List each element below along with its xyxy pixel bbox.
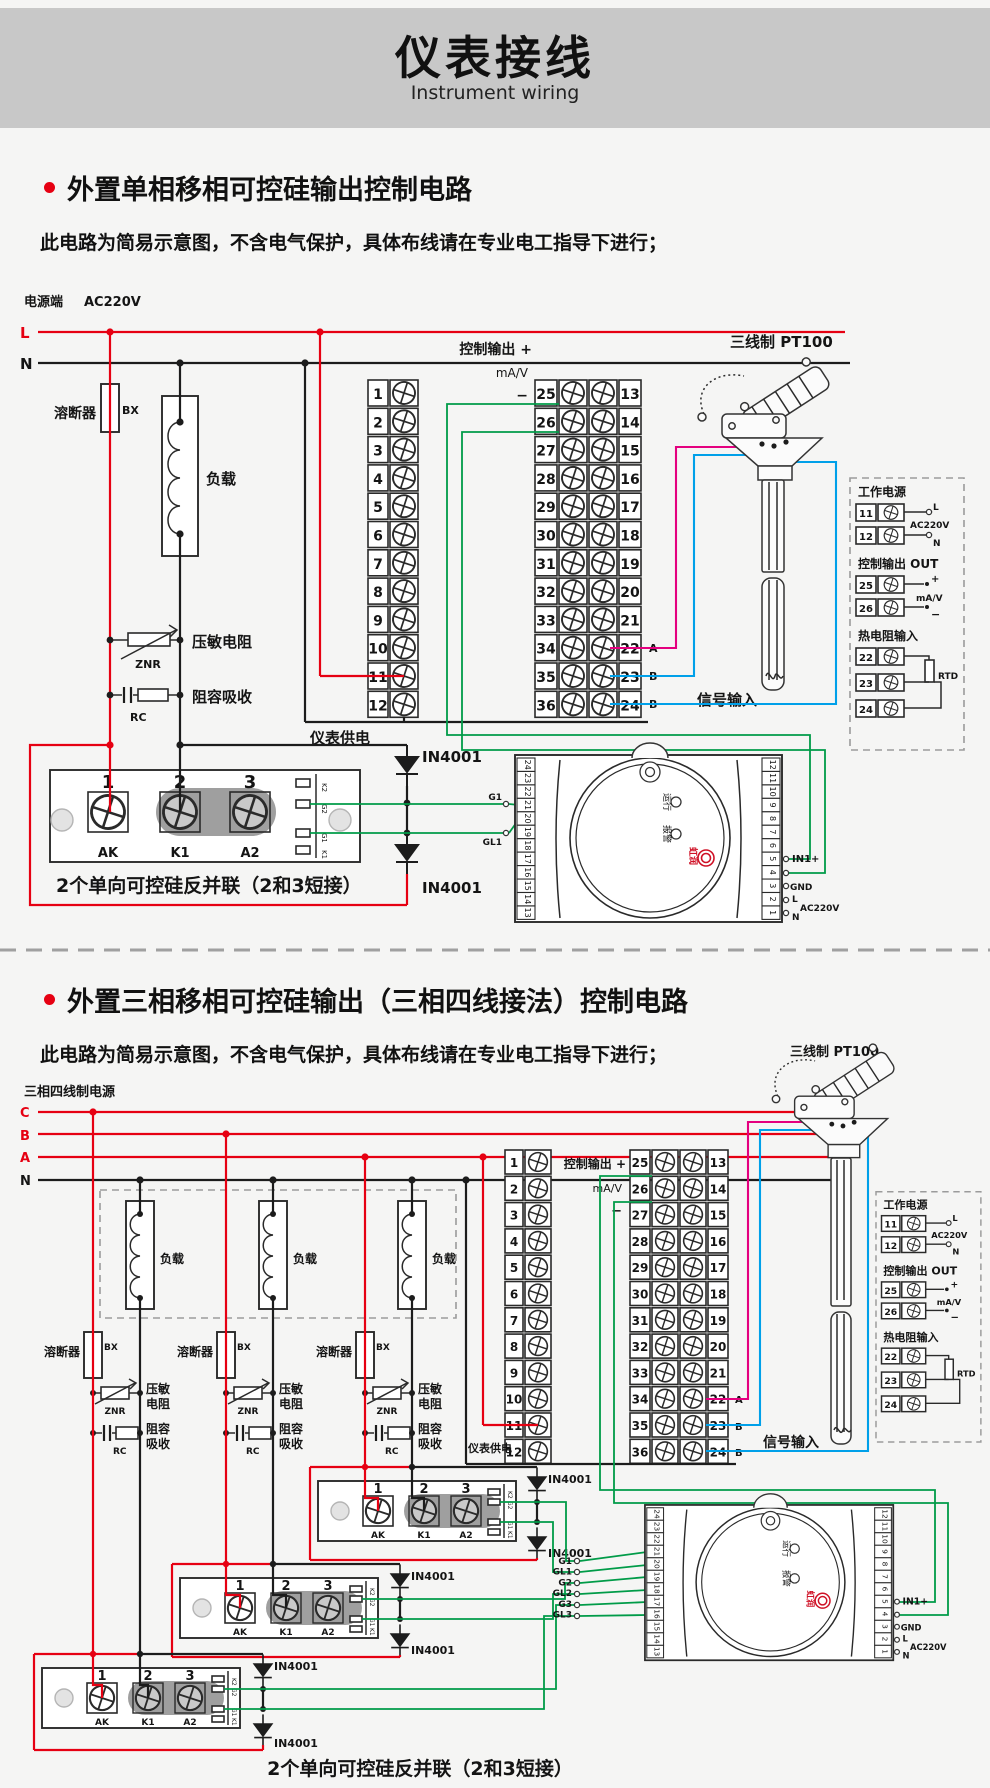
svg-text:15: 15 <box>710 1209 727 1223</box>
page: 仪表接线 Instrument wiring 外置单相移相可控硅输出控制电路 此… <box>0 0 990 1788</box>
svg-text:18: 18 <box>710 1288 727 1302</box>
svg-text:29: 29 <box>632 1261 649 1275</box>
panel-rtd: RTD <box>938 672 958 682</box>
l-label: L <box>792 895 798 905</box>
svg-text:2: 2 <box>510 1182 518 1196</box>
fuse-code-label: BX <box>122 404 139 417</box>
pt100-label: 三线制 PT100 <box>790 1044 879 1060</box>
svg-text:28: 28 <box>536 472 555 488</box>
scr-caption-s1: 2个单向可控硅反并联（2和3短接） <box>56 874 362 897</box>
terminal-row: 29 17 <box>535 492 641 520</box>
signal-b1-label: B <box>735 1422 743 1433</box>
load-label: 负载 <box>206 470 236 488</box>
diode-label: IN4001 <box>422 879 482 897</box>
fuse-label: 溶断器 <box>54 405 97 422</box>
ctrl-out-label: 控制输出 + <box>459 341 532 358</box>
terminal-row: 3 <box>368 436 418 464</box>
diode-label: IN4001 <box>274 1660 318 1673</box>
terminal-row: 2 <box>368 407 418 435</box>
svg-text:11: 11 <box>368 670 387 686</box>
meter-supply-label: 仪表供电 <box>467 1441 512 1455</box>
terminal-row: 30 18 <box>535 521 641 549</box>
scr-terminal-1: 1 <box>373 1482 382 1497</box>
svg-text:35: 35 <box>632 1419 649 1433</box>
svg-text:6: 6 <box>373 529 383 545</box>
svg-text:27: 27 <box>632 1209 649 1223</box>
panel-mav: mA/V <box>916 594 943 604</box>
svg-text:12: 12 <box>768 760 777 770</box>
fuse-s2: 溶断器 BX <box>44 1332 118 1378</box>
phase-n-label: N <box>20 1174 31 1189</box>
terminal-row: 7 <box>368 549 418 577</box>
terminal-row: 27 15 <box>630 1203 728 1227</box>
svg-text:4: 4 <box>510 1235 518 1249</box>
terminal-row: 31 19 <box>630 1308 728 1332</box>
snubber-l2: 吸收 <box>146 1436 170 1451</box>
scr-pin-k1: K1 <box>170 846 189 861</box>
terminal-row: 6 <box>505 1282 551 1306</box>
svg-text:19: 19 <box>523 827 532 837</box>
znr-label: ZNR <box>105 1407 126 1417</box>
protection-s2: ZNR 压敏 电阻 RC 阻容 吸收 <box>90 1379 171 1457</box>
svg-text:23: 23 <box>620 670 639 686</box>
svg-text:36: 36 <box>536 698 555 714</box>
svg-text:1: 1 <box>373 387 383 403</box>
svg-text:20: 20 <box>523 813 532 823</box>
ctrl-out-label: 控制输出 + <box>564 1156 626 1171</box>
panel-23: 23 <box>859 679 873 690</box>
terminal-row: 9 <box>368 606 418 634</box>
terminal-block-right-s1: 25 13 26 14 <box>535 379 641 718</box>
terminal-row: 4 <box>368 464 418 492</box>
rc-label: RC <box>113 1447 127 1457</box>
panel-26: 26 <box>859 604 873 615</box>
svg-text:16: 16 <box>620 472 639 488</box>
scr-strip-g2: G2 <box>320 804 328 814</box>
panel-11: 11 <box>859 509 873 520</box>
line-l-label: L <box>20 324 30 342</box>
svg-text:26: 26 <box>536 415 555 431</box>
znr-label: ZNR <box>135 658 161 671</box>
terminal-row: 9 <box>505 1360 551 1384</box>
svg-text:6: 6 <box>510 1288 518 1302</box>
scr-terminal-3: 3 <box>244 772 257 793</box>
terminal-row: 5 <box>368 492 418 520</box>
svg-text:GL3: GL3 <box>553 1611 572 1621</box>
svg-text:17: 17 <box>710 1261 727 1275</box>
svg-text:G1: G1 <box>558 1557 572 1567</box>
svg-text:12: 12 <box>368 698 387 714</box>
signal-input-label: 信号输入 <box>697 691 757 709</box>
svg-text:11: 11 <box>768 773 777 783</box>
svg-text:24: 24 <box>523 760 532 770</box>
pt100-label: 三线制 PT100 <box>730 333 833 351</box>
svg-text:8: 8 <box>373 585 383 601</box>
signal-a-label: A <box>735 1395 743 1406</box>
svg-text:25: 25 <box>536 387 555 403</box>
svg-text:13: 13 <box>710 1156 727 1170</box>
svg-text:36: 36 <box>632 1445 649 1459</box>
svg-text:1: 1 <box>768 910 777 915</box>
trigger-board-s2 <box>645 1494 947 1661</box>
trigger-left-strip: 24 23 22 21 20 19 18 17 16 15 14 13 <box>517 758 535 919</box>
svg-text:20: 20 <box>710 1340 727 1354</box>
power-voltage-label: AC220V <box>84 295 141 310</box>
svg-text:5: 5 <box>510 1261 518 1275</box>
varistor-l1: 压敏 <box>146 1381 171 1396</box>
svg-text:22: 22 <box>620 642 639 658</box>
terminal-row: 1 <box>368 379 418 407</box>
section1-diagram: 电源端 AC220V L N 溶断器 BX 负载 <box>20 294 964 923</box>
svg-text:14: 14 <box>710 1182 727 1196</box>
terminal-row: 33 21 <box>535 606 641 634</box>
panel-22: 22 <box>859 653 873 664</box>
diode-label: IN4001 <box>411 1644 455 1657</box>
svg-text:15: 15 <box>620 444 639 460</box>
terminal-row: 29 17 <box>630 1255 728 1279</box>
svg-text:16: 16 <box>710 1235 727 1249</box>
svg-text:13: 13 <box>620 387 639 403</box>
panel-ac: AC220V <box>910 521 949 531</box>
panel-24: 24 <box>859 705 873 716</box>
svg-text:27: 27 <box>536 444 555 460</box>
terminal-row: 5 <box>505 1255 551 1279</box>
svg-text:14: 14 <box>523 894 532 904</box>
svg-text:29: 29 <box>536 500 555 516</box>
svg-text:21: 21 <box>710 1366 727 1380</box>
svg-text:G3: G3 <box>558 1600 572 1610</box>
scr-pin-ak: AK <box>371 1531 386 1541</box>
terminal-row: 1 <box>505 1150 551 1174</box>
terminal-row: 10 <box>368 634 418 662</box>
svg-text:15: 15 <box>523 881 532 891</box>
terminal-row: 31 19 <box>535 549 641 577</box>
scr-module-s1: 1 2 3 AK K1 A2 K2 G2 G1 K1 <box>50 770 360 862</box>
svg-text:16: 16 <box>523 867 532 877</box>
svg-text:21: 21 <box>620 613 639 629</box>
svg-text:22: 22 <box>523 787 532 797</box>
terminal-row: 4 <box>505 1229 551 1253</box>
gate-gl1-label: GL1 <box>483 838 502 848</box>
svg-text:9: 9 <box>510 1366 518 1380</box>
svg-text:32: 32 <box>536 585 555 601</box>
svg-text:18: 18 <box>620 529 639 545</box>
ac220-label: AC220V <box>800 904 839 914</box>
signal-b2-label: B <box>735 1448 743 1459</box>
svg-text:2: 2 <box>373 415 383 431</box>
side-panel: 工作电源 11 L AC220V 12 N 控制输出 OUT 25 + mA/V… <box>850 478 964 750</box>
varistor-label: 压敏电阻 <box>192 633 252 651</box>
diode-label: IN4001 <box>411 1570 455 1583</box>
line-n-label: N <box>20 355 33 373</box>
gnd-label: GND <box>790 883 812 893</box>
diode-label: IN4001 <box>274 1737 318 1750</box>
scr-pin-a2: A2 <box>240 846 259 861</box>
minus-label: − <box>611 1204 622 1219</box>
panel-n: N <box>933 539 941 549</box>
svg-text:28: 28 <box>632 1235 649 1249</box>
snubber-label: 阻容吸收 <box>192 688 252 706</box>
panel-power-title: 工作电源 <box>858 484 906 499</box>
svg-text:9: 9 <box>768 803 777 808</box>
gate-labels-s2: G1GL1G2GL2G3GL3 <box>553 1557 572 1621</box>
led-run-label: 运行 <box>661 793 673 811</box>
terminal-row: 7 <box>505 1308 551 1332</box>
brand-label: 虹润 <box>687 847 699 865</box>
svg-text:19: 19 <box>620 557 639 573</box>
svg-text:1: 1 <box>510 1156 518 1170</box>
mav-label: mA/V <box>593 1182 623 1195</box>
terminal-block-left-s1: 1 2 3 4 <box>368 379 418 718</box>
svg-text:24: 24 <box>710 1445 727 1459</box>
scr-strip-k1: K1 <box>506 1531 513 1539</box>
wiring-diagram: 电源端 AC220V L N 溶断器 BX 负载 <box>0 0 990 1788</box>
svg-text:6: 6 <box>768 843 777 848</box>
scr-terminal-2: 2 <box>419 1482 428 1497</box>
panel-minus: − <box>931 608 940 621</box>
svg-text:17: 17 <box>523 854 532 864</box>
fuse-label: 溶断器 <box>44 1344 81 1359</box>
minus-label: − <box>516 388 528 404</box>
terminal-block-left-s2: 1 2 3 4 <box>505 1150 551 1463</box>
panel-25: 25 <box>859 581 873 592</box>
panel-out-title: 控制输出 OUT <box>858 556 939 571</box>
svg-text:GL1: GL1 <box>553 1568 572 1578</box>
n-label: N <box>792 913 800 923</box>
scr-terminal-1: 1 <box>102 772 115 793</box>
terminal-row: 25 13 <box>535 379 641 407</box>
load-label: 负载 <box>160 1251 184 1266</box>
scr-strip-k2: K2 <box>320 783 328 792</box>
scr-pin-k1: K1 <box>417 1531 430 1541</box>
diode-label: IN4001 <box>548 1473 592 1486</box>
panel-rtd-title: 热电阻输入 <box>858 628 918 643</box>
phase-b-label: B <box>20 1129 30 1144</box>
phase-a-label: A <box>20 1151 30 1166</box>
svg-text:5: 5 <box>373 500 383 516</box>
terminal-row: 25 13 <box>630 1150 728 1174</box>
svg-text:35: 35 <box>536 670 555 686</box>
three-phase-power-label: 三相四线制电源 <box>24 1084 115 1100</box>
svg-text:4: 4 <box>768 870 777 875</box>
svg-text:34: 34 <box>536 642 556 658</box>
terminal-row: 3 <box>505 1203 551 1227</box>
panel-12: 12 <box>859 532 873 543</box>
svg-text:13: 13 <box>523 908 532 918</box>
scr-terminal-3: 3 <box>461 1482 470 1497</box>
svg-text:32: 32 <box>632 1340 649 1354</box>
svg-text:10: 10 <box>506 1393 523 1407</box>
svg-text:33: 33 <box>632 1366 649 1380</box>
terminal-row: 32 20 <box>630 1334 728 1358</box>
svg-text:10: 10 <box>368 642 388 658</box>
fuse-code-label: BX <box>104 1343 118 1353</box>
terminal-row: 33 21 <box>630 1360 728 1384</box>
terminal-row: 12 <box>368 690 418 718</box>
svg-text:14: 14 <box>620 415 640 431</box>
terminal-row: 32 20 <box>535 577 641 605</box>
terminal-row: 8 <box>368 577 418 605</box>
scr-module-s2: 1 2 3 AK K1 A2 K2 G2 G1 K1 <box>318 1481 516 1541</box>
scr-pin-ak: AK <box>98 846 119 861</box>
phase-c-label: C <box>20 1106 30 1121</box>
svg-text:3: 3 <box>373 444 383 460</box>
panel-plus: + <box>931 574 939 585</box>
scr-caption-s2: 2个单向可控硅反并联（2和3短接） <box>267 1757 573 1780</box>
svg-text:31: 31 <box>632 1314 649 1328</box>
svg-text:7: 7 <box>510 1314 518 1328</box>
trigger-board: 运行 报警 虹润 24 23 22 21 20 19 18 17 <box>515 743 839 923</box>
svg-text:G2: G2 <box>558 1578 572 1588</box>
scr-strip-k1: K1 <box>320 850 328 859</box>
svg-text:19: 19 <box>710 1314 727 1328</box>
scr-pin-a2: A2 <box>459 1531 472 1541</box>
panel-l: L <box>933 503 939 513</box>
svg-text:20: 20 <box>620 585 640 601</box>
svg-text:25: 25 <box>632 1156 649 1170</box>
svg-text:10: 10 <box>768 787 777 797</box>
pt100-sensor-s1 <box>698 354 831 690</box>
terminal-block-right-s2: 25 13 26 14 <box>630 1150 728 1463</box>
snubber-l1: 阻容 <box>146 1421 170 1436</box>
svg-text:9: 9 <box>373 613 383 629</box>
svg-text:2: 2 <box>768 897 777 902</box>
svg-text:33: 33 <box>536 613 555 629</box>
section2-diagram: 三相四线制电源 C B A N 负载 <box>20 1041 981 1780</box>
terminal-row: 26 14 <box>535 407 641 435</box>
trigger-right-strip: 12 11 10 9 8 7 6 5 4 3 2 1 <box>762 758 780 919</box>
diode-label: IN4001 <box>422 748 482 766</box>
load-s2: 负载 <box>126 1201 184 1309</box>
diode-chain-s1 <box>396 745 418 905</box>
svg-text:3: 3 <box>510 1209 518 1223</box>
svg-text:7: 7 <box>373 557 383 573</box>
load-s1: 负载 <box>162 396 236 556</box>
svg-text:8: 8 <box>510 1340 518 1354</box>
gate-g1-label: G1 <box>488 793 502 803</box>
power-end-label: 电源端 <box>24 294 63 310</box>
svg-text:GL2: GL2 <box>553 1589 572 1599</box>
svg-text:8: 8 <box>768 816 777 821</box>
signal-input-label: 信号输入 <box>763 1434 819 1451</box>
svg-text:3: 3 <box>768 883 777 888</box>
svg-text:34: 34 <box>632 1393 649 1407</box>
terminal-row: 28 16 <box>535 464 641 492</box>
side-panel-s2 <box>876 1192 981 1442</box>
fuse-s1: 溶断器 BX <box>54 384 139 432</box>
varistor-l2: 电阻 <box>146 1396 170 1411</box>
led-alarm-label: 报警 <box>661 825 673 843</box>
svg-text:18: 18 <box>523 840 532 850</box>
svg-text:30: 30 <box>536 529 556 545</box>
svg-text:4: 4 <box>373 472 383 488</box>
svg-text:30: 30 <box>632 1288 649 1302</box>
terminal-row: 30 18 <box>630 1282 728 1306</box>
terminal-row: 28 16 <box>630 1229 728 1253</box>
svg-text:23: 23 <box>523 773 532 783</box>
svg-text:24: 24 <box>620 698 640 714</box>
terminal-row: 10 <box>505 1387 551 1411</box>
rc-label: RC <box>130 711 147 724</box>
terminal-row: 8 <box>505 1334 551 1358</box>
svg-text:5: 5 <box>768 856 777 861</box>
scr-strip-k2: K2 <box>506 1491 513 1499</box>
mav-label: mA/V <box>496 366 529 380</box>
svg-text:17: 17 <box>620 500 639 516</box>
svg-text:7: 7 <box>768 829 777 834</box>
svg-text:26: 26 <box>632 1182 649 1196</box>
terminal-row: 27 15 <box>535 436 641 464</box>
in1-label: IN1+ <box>792 854 819 865</box>
pt100-sensor-s2 <box>772 1041 896 1444</box>
scr-strip-g1: G1 <box>320 833 328 843</box>
terminal-row: 2 <box>505 1176 551 1200</box>
svg-text:21: 21 <box>523 800 532 810</box>
svg-text:31: 31 <box>536 557 555 573</box>
terminal-row: 6 <box>368 521 418 549</box>
